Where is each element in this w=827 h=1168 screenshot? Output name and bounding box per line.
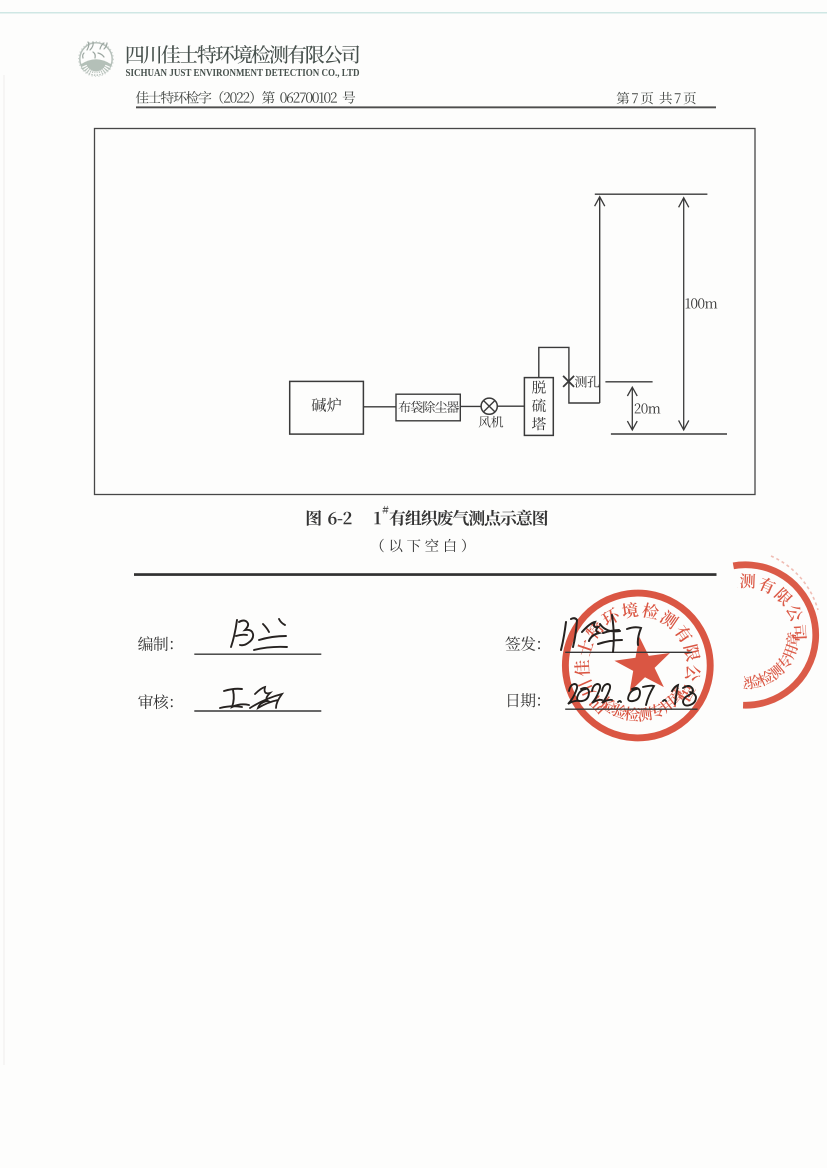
- svg-text:SICHUAN JUST ENVIRONMENT DETEC: SICHUAN JUST ENVIRONMENT DETECTION CO., …: [126, 68, 360, 79]
